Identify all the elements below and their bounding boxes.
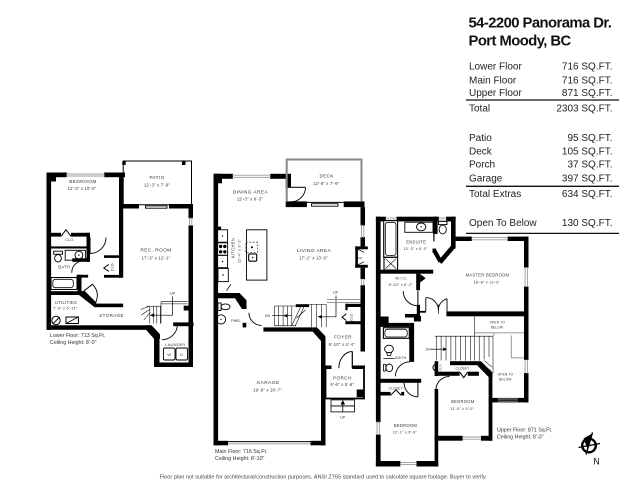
svg-text:BELOW: BELOW <box>491 325 504 329</box>
svg-text:12'-1" x 9'-3": 12'-1" x 9'-3" <box>393 431 417 435</box>
svg-text:105 SQ.FT.: 105 SQ.FT. <box>562 146 613 157</box>
svg-text:PORCH: PORCH <box>333 376 351 381</box>
svg-text:Upper Floor: Upper Floor <box>469 88 522 99</box>
svg-text:DN: DN <box>265 314 271 318</box>
svg-text:REC. ROOM: REC. ROOM <box>140 248 171 254</box>
svg-text:634 SQ.FT.: 634 SQ.FT. <box>562 189 613 200</box>
svg-text:12'-3" x 7'-9": 12'-3" x 7'-9" <box>144 183 171 188</box>
svg-text:KITCHEN: KITCHEN <box>231 238 236 258</box>
svg-text:95 SQ.FT.: 95 SQ.FT. <box>567 133 612 144</box>
svg-text:FP: FP <box>358 257 363 261</box>
svg-text:BATH: BATH <box>395 355 406 360</box>
svg-text:Total: Total <box>469 104 490 115</box>
svg-text:LAUNDRY: LAUNDRY <box>165 342 186 347</box>
svg-text:Main Floor: Main Floor <box>469 75 517 86</box>
svg-text:CLOSET: CLOSET <box>456 367 470 371</box>
svg-text:Port Moody, BC: Port Moody, BC <box>469 34 572 50</box>
svg-text:D: D <box>180 352 183 357</box>
svg-text:17'-1" x 13'-0": 17'-1" x 13'-0" <box>299 256 328 261</box>
svg-text:OPEN TO: OPEN TO <box>489 321 505 325</box>
svg-text:12'-9" x 7'-9": 12'-9" x 7'-9" <box>313 181 340 186</box>
svg-text:54-2200 Panorama Dr.: 54-2200 Panorama Dr. <box>469 16 612 32</box>
svg-text:W.I.C.: W.I.C. <box>395 276 408 281</box>
svg-text:Porch: Porch <box>469 160 495 171</box>
svg-text:2303 SQ.FT.: 2303 SQ.FT. <box>556 104 612 115</box>
svg-text:MASTER BEDROOM: MASTER BEDROOM <box>466 272 510 277</box>
svg-text:UP: UP <box>333 291 339 295</box>
svg-text:716 SQ.FT.: 716 SQ.FT. <box>562 75 613 86</box>
svg-text:DN: DN <box>426 348 431 352</box>
svg-text:BEDROOM: BEDROOM <box>394 423 418 428</box>
svg-text:W: W <box>167 352 171 357</box>
svg-text:BATH: BATH <box>58 264 70 269</box>
svg-text:N: N <box>593 457 600 467</box>
svg-text:CLO.: CLO. <box>111 262 115 271</box>
svg-text:8'-10" x 6'-2": 8'-10" x 6'-2" <box>389 283 413 287</box>
svg-text:CLO: CLO <box>349 313 353 321</box>
svg-text:BELOW: BELOW <box>499 377 512 381</box>
svg-text:UTILITIES: UTILITIES <box>55 300 77 305</box>
svg-text:Ceiling Height: 8'-0": Ceiling Height: 8'-0" <box>497 435 544 441</box>
svg-text:CLO.: CLO. <box>65 238 75 242</box>
svg-text:OPEN TO: OPEN TO <box>498 373 514 377</box>
svg-text:Main Floor: 716 Sq.Ft.: Main Floor: 716 Sq.Ft. <box>215 449 267 455</box>
svg-text:Ceiling Height: 8'-0": Ceiling Height: 8'-0" <box>50 340 97 346</box>
svg-text:UP: UP <box>340 416 346 420</box>
svg-text:11'-4" x 9'-1": 11'-4" x 9'-1" <box>237 238 242 263</box>
svg-text:6'-6" x 5'-6": 6'-6" x 5'-6" <box>330 382 354 387</box>
svg-text:18'-8" x 13'-3": 18'-8" x 13'-3" <box>474 280 501 284</box>
svg-text:BEDROOM: BEDROOM <box>69 179 97 185</box>
svg-text:Floor plan not suitable for ar: Floor plan not suitable for architectura… <box>160 474 488 480</box>
svg-text:Garage: Garage <box>469 174 503 185</box>
svg-text:LIVING AREA: LIVING AREA <box>297 248 332 254</box>
svg-text:PATIO: PATIO <box>149 175 164 180</box>
svg-text:DECK: DECK <box>320 174 335 179</box>
svg-text:19'-9" x 18'-7": 19'-9" x 18'-7" <box>253 387 282 392</box>
svg-text:CLO: CLO <box>439 364 443 371</box>
svg-text:Open To Below: Open To Below <box>469 218 537 229</box>
svg-text:PWD.: PWD. <box>231 319 241 323</box>
svg-text:STORAGE: STORAGE <box>99 313 124 318</box>
svg-text:130 SQ.FT.: 130 SQ.FT. <box>562 218 613 229</box>
svg-text:871 SQ.FT.: 871 SQ.FT. <box>562 88 613 99</box>
svg-text:UP: UP <box>170 292 176 296</box>
svg-text:Upper Floor: 871 Sq.Ft.: Upper Floor: 871 Sq.Ft. <box>497 427 552 433</box>
svg-text:DINING AREA: DINING AREA <box>233 189 269 195</box>
svg-text:Deck: Deck <box>469 146 493 157</box>
svg-text:Total Extras: Total Extras <box>469 189 521 200</box>
svg-text:12'-3" x 10'-0": 12'-3" x 10'-0" <box>68 186 97 191</box>
svg-text:716 SQ.FT.: 716 SQ.FT. <box>562 61 613 72</box>
svg-text:17'-3" x 12'-1": 17'-3" x 12'-1" <box>142 256 171 261</box>
svg-text:7'-9" x 5'-11": 7'-9" x 5'-11" <box>53 305 78 310</box>
svg-text:6'-10" x 4'-4": 6'-10" x 4'-4" <box>329 342 356 347</box>
svg-text:397 SQ.FT.: 397 SQ.FT. <box>562 174 613 185</box>
svg-text:12'-3" x 9'-3": 12'-3" x 9'-3" <box>237 196 264 201</box>
svg-text:Ceiling Height: 8'-10": Ceiling Height: 8'-10" <box>215 456 265 462</box>
svg-text:Lower Floor: 713 Sq.Ft.: Lower Floor: 713 Sq.Ft. <box>50 333 105 339</box>
svg-text:Patio: Patio <box>469 133 492 144</box>
svg-text:FOYER: FOYER <box>334 335 352 340</box>
svg-text:BEDROOM: BEDROOM <box>451 399 475 404</box>
svg-text:11'-0" x 9'-0": 11'-0" x 9'-0" <box>450 407 474 411</box>
svg-text:37 SQ.FT.: 37 SQ.FT. <box>567 160 612 171</box>
svg-text:ENSUITE: ENSUITE <box>406 240 426 245</box>
svg-text:Lower Floor: Lower Floor <box>469 61 522 72</box>
svg-text:GARAGE: GARAGE <box>257 380 280 386</box>
svg-text:12'-3" x 9'-0": 12'-3" x 9'-0" <box>404 247 428 251</box>
